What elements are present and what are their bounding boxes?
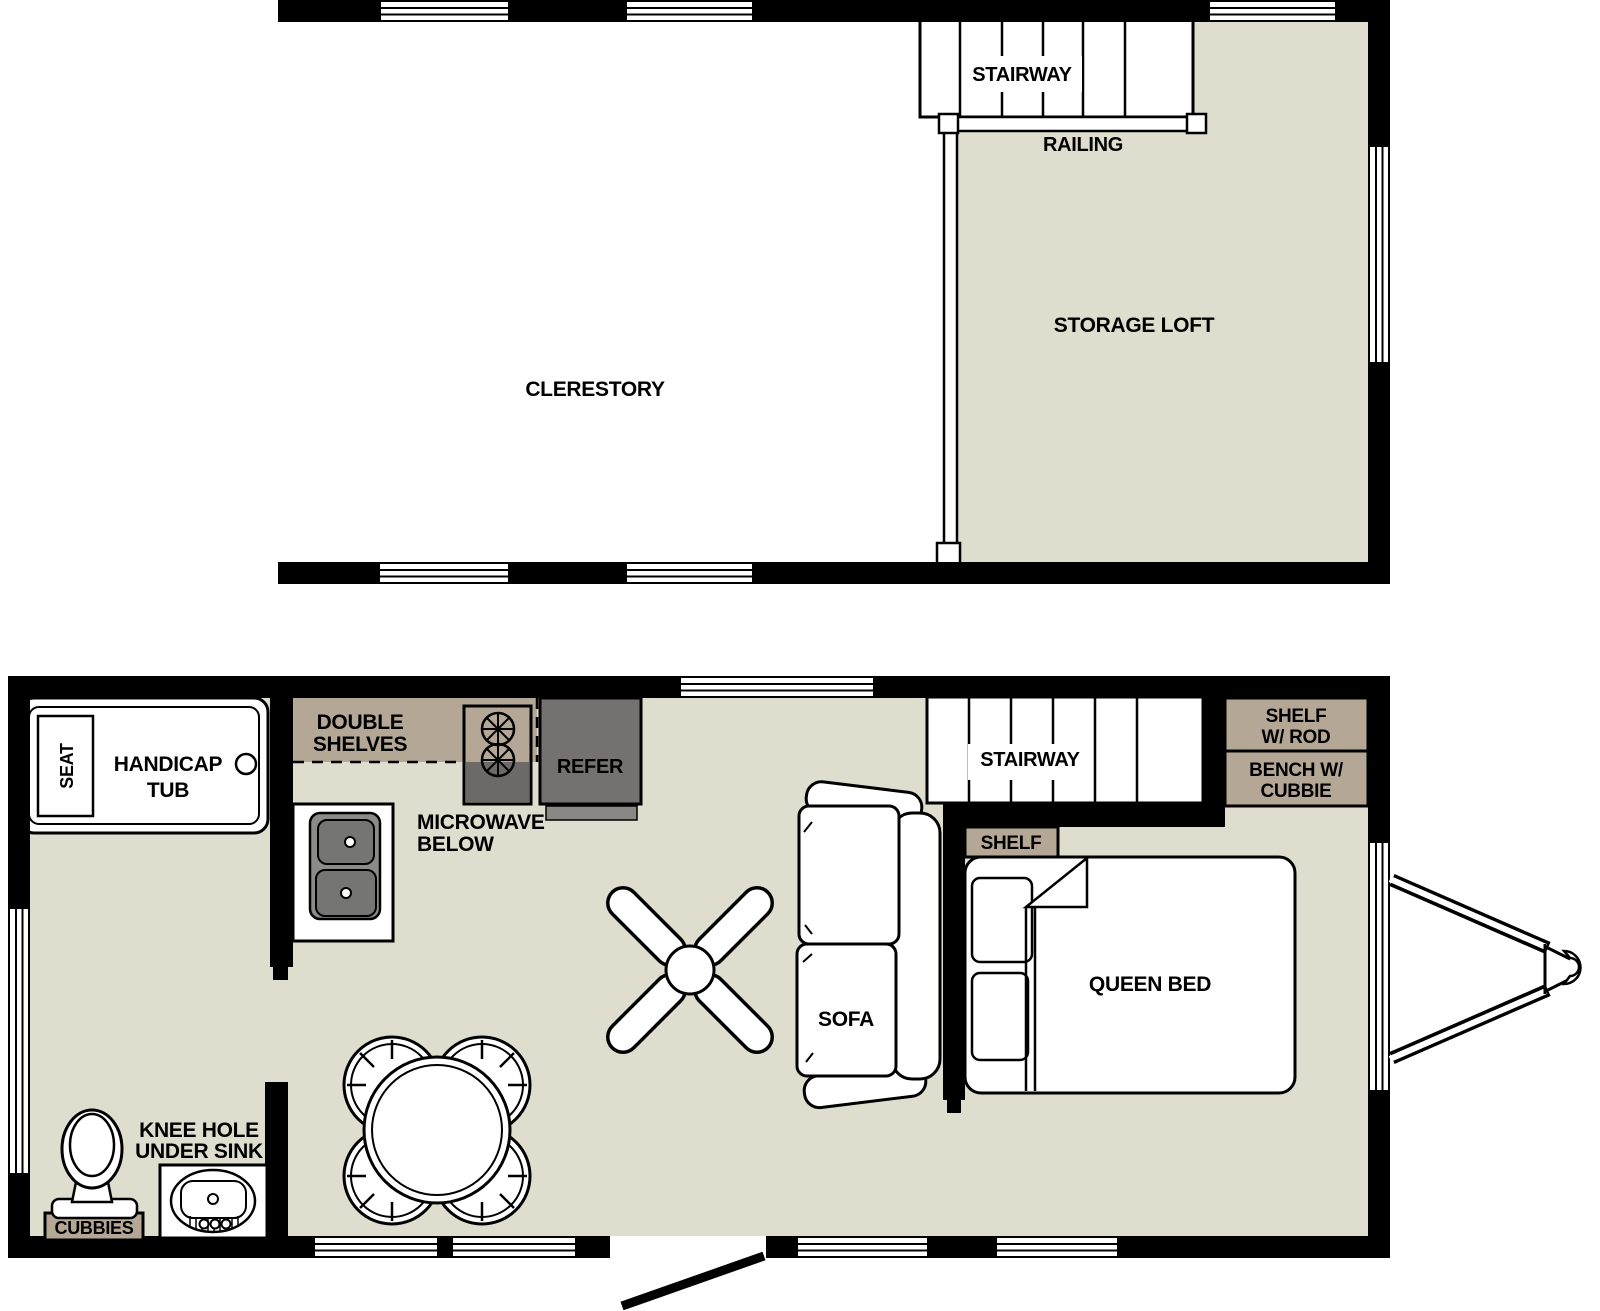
window [315, 1238, 437, 1256]
floor-plan-drawing: CLERESTORY STAIRWAY RAILING STORAGE LOFT [0, 0, 1600, 1311]
handicap-tub-label-line2: TUB [147, 779, 189, 802]
window [627, 2, 752, 20]
sofa-label: SOFA [818, 1008, 874, 1031]
wall-bedroom-divider [943, 803, 965, 1100]
dining-table [364, 1057, 510, 1203]
railing-label: RAILING [1043, 134, 1123, 156]
cubbies-label: CUBBIES [55, 1218, 134, 1238]
bench-w-cubbie-label-line1: BENCH W/ [1249, 760, 1344, 781]
window [1370, 843, 1388, 1090]
refer-label: REFER [557, 756, 624, 778]
microwave-label-line2: BELOW [417, 833, 494, 856]
queen-bed-label: QUEEN BED [1089, 973, 1211, 996]
window [627, 564, 752, 582]
window [453, 1238, 575, 1256]
clerestory-label: CLERESTORY [525, 378, 665, 401]
sofa [797, 780, 940, 1109]
double-shelves-label-line1: DOUBLE [317, 711, 404, 734]
sink-drain [345, 837, 355, 847]
window [1370, 147, 1388, 362]
floor-plan-page: CLERESTORY STAIRWAY RAILING STORAGE LOFT [0, 0, 1600, 1311]
fan-hub [666, 946, 714, 994]
sofa-cushion [799, 806, 899, 944]
door-leaf [622, 1256, 764, 1306]
sink-drain [208, 1194, 218, 1204]
trailer-hitch [1390, 879, 1581, 1059]
shelf-label: SHELF [981, 833, 1042, 854]
stairway-lower-label: STAIRWAY [980, 749, 1080, 771]
stairway-upper-label: STAIRWAY [972, 64, 1072, 86]
handicap-tub-label-line1: HANDICAP [114, 753, 223, 776]
tub-faucet [236, 754, 256, 774]
kitchen-sink [293, 804, 393, 941]
bathroom-sink [160, 1165, 267, 1238]
wall-stairway-bottom [943, 803, 1225, 827]
storage-loft-area-upper-corner [1193, 22, 1368, 132]
microwave-label-line1: MICROWAVE [417, 811, 545, 834]
toilet-bowl-inner [70, 1114, 114, 1176]
window [381, 2, 508, 20]
railing-vertical-rail [944, 131, 957, 545]
seat-label: SEAT [57, 743, 77, 789]
wall-bedroom-divider-end [947, 1097, 961, 1113]
window [380, 564, 508, 582]
sink-drain [341, 888, 351, 898]
bench-w-cubbie-label-line2: CUBBIE [1260, 781, 1331, 802]
window [10, 909, 28, 1173]
window [798, 1238, 927, 1256]
shelf-w-rod-label-line2: W/ ROD [1262, 727, 1331, 748]
storage-loft-label: STORAGE LOFT [1054, 314, 1215, 337]
wall-bathroom-upper-end [273, 964, 288, 980]
stove [464, 706, 531, 804]
storage-loft-area [957, 130, 1368, 562]
window [997, 1238, 1117, 1256]
shelf-w-rod-label-line1: SHELF [1266, 706, 1327, 727]
window [1210, 2, 1335, 20]
railing-post [937, 543, 960, 564]
bed-cubbie [972, 878, 1032, 962]
entry-door [610, 1236, 766, 1306]
double-shelves-label-line2: SHELVES [313, 733, 408, 756]
knee-hole-label-line2: UNDER SINK [135, 1140, 263, 1163]
railing-post [939, 114, 958, 133]
wall-bathroom-upper [270, 695, 293, 967]
bed-cubbie [972, 973, 1028, 1060]
railing-post [1187, 114, 1206, 133]
main-level: SEAT HANDICAP TUB DOUBLE SHELVES MICROWA… [8, 676, 1581, 1306]
door-opening [610, 1236, 766, 1258]
upper-level: CLERESTORY STAIRWAY RAILING STORAGE LOFT [278, 0, 1390, 584]
window [681, 678, 873, 696]
railing-horizontal-rail [943, 117, 1205, 131]
knee-hole-label-line1: KNEE HOLE [139, 1119, 259, 1142]
